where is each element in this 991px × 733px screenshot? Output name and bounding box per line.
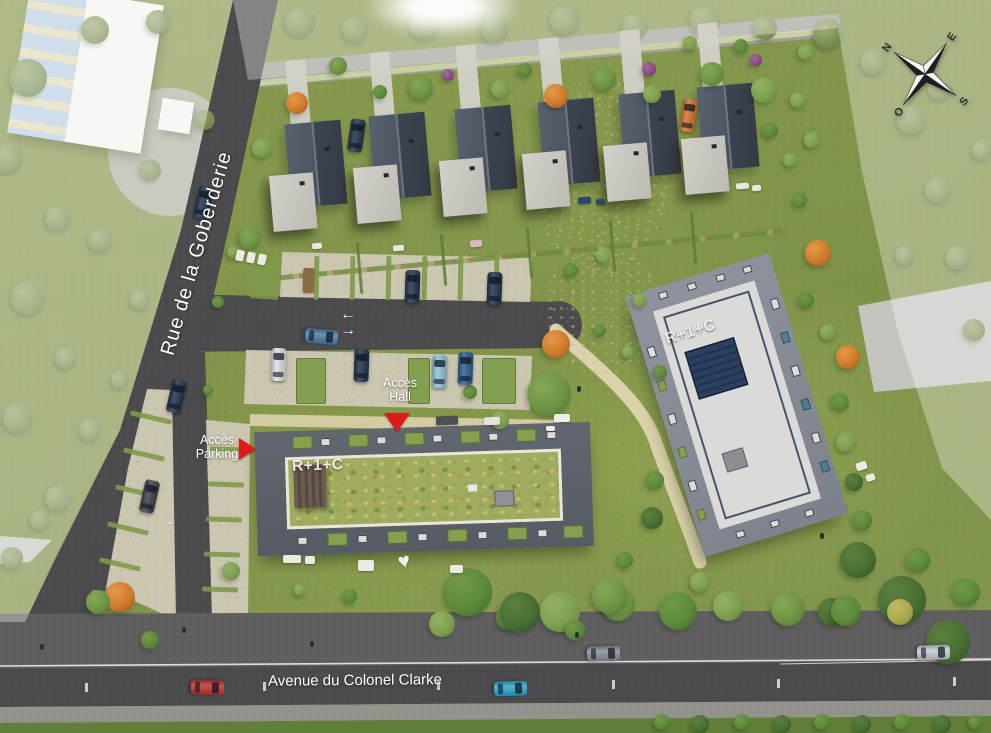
garden-furniture xyxy=(305,556,315,564)
tree-dk xyxy=(853,715,871,733)
house-annex-roof xyxy=(353,164,402,224)
tree-g3 xyxy=(444,568,492,616)
tree-g3 xyxy=(203,385,213,395)
parking-divider xyxy=(422,256,428,300)
car xyxy=(270,348,286,382)
garden-furniture xyxy=(303,268,315,293)
tree-g3 xyxy=(852,510,872,530)
balcony-cell xyxy=(780,331,791,344)
compass-east-label: E xyxy=(945,30,959,43)
pedestrian xyxy=(820,533,824,539)
tree-g3 xyxy=(952,578,980,606)
tree-g2 xyxy=(751,77,777,103)
garden-furniture xyxy=(484,417,500,426)
skylight xyxy=(658,291,669,300)
tree-g2 xyxy=(643,85,661,103)
skylight xyxy=(537,529,547,537)
car-rear-window xyxy=(681,122,693,128)
tree-g3 xyxy=(762,122,778,138)
balcony-cell xyxy=(677,446,688,459)
roof-vent xyxy=(578,125,583,129)
tree-pu xyxy=(442,69,454,81)
car-rear-window xyxy=(498,683,503,694)
tree-g1 xyxy=(86,590,110,614)
car-windshield xyxy=(515,683,522,694)
tree-muted xyxy=(45,485,71,511)
tree-pu xyxy=(642,62,656,76)
tree-g3 xyxy=(798,292,814,308)
car xyxy=(457,352,473,386)
car xyxy=(404,270,420,304)
house-annex-roof xyxy=(681,135,730,195)
balcony-cell xyxy=(507,527,527,541)
industrial-annex xyxy=(158,98,195,135)
balcony-cell xyxy=(460,430,480,444)
roof-vent xyxy=(659,117,664,121)
tree-g3 xyxy=(814,714,830,730)
car xyxy=(431,355,447,389)
building-a-label: R+1+C xyxy=(292,456,344,476)
car-rear-window xyxy=(921,647,926,658)
skylight xyxy=(715,273,726,282)
skylight xyxy=(432,434,442,442)
tree-g2 xyxy=(798,44,814,60)
access-parking-arrow-icon xyxy=(239,438,256,460)
skylight xyxy=(297,537,307,545)
garden-furniture xyxy=(470,239,483,247)
roof-vent xyxy=(711,144,716,148)
tree-muted xyxy=(195,110,215,130)
car xyxy=(353,349,369,383)
tree-g3 xyxy=(906,548,930,572)
car xyxy=(587,645,621,661)
house-unit xyxy=(537,98,600,187)
car-rear-window xyxy=(349,142,361,148)
compass-rose: N E S O xyxy=(875,22,975,122)
balcony-cell xyxy=(404,432,424,446)
access-hall-arrow-icon xyxy=(384,413,410,432)
car-rear-window xyxy=(195,682,200,693)
tree-g2 xyxy=(804,132,820,148)
car-rear-window xyxy=(407,294,418,299)
tree-g3 xyxy=(968,715,982,729)
garden-furniture xyxy=(596,199,605,206)
tree-muted xyxy=(81,16,109,44)
car-windshield xyxy=(460,357,471,364)
skylight xyxy=(804,508,815,517)
tree-g2 xyxy=(713,591,743,621)
car-windshield xyxy=(434,360,445,367)
tree-muted xyxy=(550,5,580,35)
balcony-cell xyxy=(292,435,312,449)
tree-yl xyxy=(887,599,913,625)
tree-muted xyxy=(972,140,991,160)
pedestrian xyxy=(182,627,186,633)
tree-g2 xyxy=(820,324,836,340)
car-rear-window xyxy=(434,379,445,384)
tree-g3 xyxy=(646,471,664,489)
skylight xyxy=(488,433,498,441)
car-windshield xyxy=(273,353,284,360)
skylight xyxy=(546,431,556,439)
tree-muted xyxy=(9,59,47,97)
balcony-cell xyxy=(447,529,467,543)
tree-g2 xyxy=(596,247,612,263)
tree-g3 xyxy=(659,592,697,630)
compass-north-label: N xyxy=(880,41,894,54)
tree-g1 xyxy=(771,592,805,626)
car-windshield xyxy=(356,354,367,361)
balcony-cell xyxy=(819,460,830,473)
street-bottom-label: Avenue du Colonel Clarke xyxy=(240,671,470,690)
tree-muted xyxy=(11,281,45,315)
skylight xyxy=(667,413,678,426)
car xyxy=(486,272,502,306)
house-annex-roof xyxy=(269,172,318,232)
house-annex-roof xyxy=(603,142,652,202)
garden-furniture xyxy=(393,245,404,252)
balcony-cell xyxy=(563,525,583,539)
road-arrow-up-icon: ↑ xyxy=(166,518,174,536)
site-plan-rendering: R+1+C R+1+C Accès Hall Accès Parking ← →… xyxy=(0,0,991,733)
tree-muted xyxy=(45,205,71,231)
garden-furniture xyxy=(752,185,761,192)
access-hall-label: Accès Hall xyxy=(370,376,430,405)
skylight xyxy=(687,480,698,493)
tree-g3 xyxy=(831,596,861,626)
car-rear-window xyxy=(273,372,284,377)
tree-muted xyxy=(342,17,368,43)
tree-muted xyxy=(946,246,970,270)
garden-furniture xyxy=(578,196,592,204)
tree-g2 xyxy=(252,138,272,158)
house-annex-roof xyxy=(439,157,488,217)
garden-furniture xyxy=(554,414,570,422)
house-unit xyxy=(618,90,681,179)
tree-g3 xyxy=(594,324,606,336)
roof-vent xyxy=(383,173,388,177)
tree-g1 xyxy=(239,227,261,249)
garden-furniture xyxy=(312,243,322,250)
skylight xyxy=(811,431,822,444)
garden-furniture xyxy=(283,555,301,563)
compass-west-label: O xyxy=(892,105,907,119)
tree-or xyxy=(105,582,135,612)
car-windshield xyxy=(352,123,364,131)
car xyxy=(917,644,951,660)
balcony-cell xyxy=(327,532,347,546)
tree-muted xyxy=(753,16,777,40)
skylight xyxy=(357,535,367,543)
car-windshield xyxy=(407,275,418,282)
car xyxy=(494,680,528,696)
roof-vent xyxy=(737,110,742,114)
tree-pu xyxy=(750,54,762,66)
tree-g3 xyxy=(141,631,159,649)
tree-muted xyxy=(139,159,161,181)
tree-g2 xyxy=(491,80,509,98)
skylight xyxy=(770,298,781,311)
tree-g1 xyxy=(592,67,616,91)
tree-g1 xyxy=(329,57,347,75)
tree-g3 xyxy=(373,85,387,99)
tree-g2 xyxy=(783,153,797,167)
tree-g1 xyxy=(700,62,724,86)
tree-g3 xyxy=(212,296,224,308)
house-unit xyxy=(696,83,759,172)
balcony-cell xyxy=(657,379,668,392)
car-rear-window xyxy=(356,373,367,378)
skylight xyxy=(320,438,330,446)
skylight xyxy=(770,519,781,528)
tree-muted xyxy=(285,7,315,37)
parking-divider xyxy=(314,256,320,300)
car-windshield xyxy=(212,682,219,693)
tree-muted xyxy=(1,547,23,569)
tree-g3 xyxy=(617,552,633,568)
tree-g3 xyxy=(653,365,667,379)
pedestrian xyxy=(40,644,44,650)
car-rear-window xyxy=(591,648,596,659)
tree-dk xyxy=(840,542,876,578)
house-unit xyxy=(368,112,431,201)
tree-g2 xyxy=(690,572,710,592)
tree-or xyxy=(544,84,568,108)
tree-g3 xyxy=(793,193,807,207)
tree-dk xyxy=(773,715,791,733)
tree-g2 xyxy=(633,293,647,307)
tree-muted xyxy=(55,347,77,369)
car-windshield xyxy=(172,384,184,393)
car xyxy=(304,328,338,346)
pedestrian xyxy=(577,386,581,392)
tree-muted xyxy=(895,245,915,265)
skylight xyxy=(687,282,698,291)
skylight xyxy=(742,265,753,274)
garden-furniture xyxy=(546,426,555,431)
tree-muted xyxy=(130,290,150,310)
tree-muted xyxy=(146,10,170,34)
skylight xyxy=(477,531,487,539)
tree-g3 xyxy=(894,714,910,730)
tree-g1 xyxy=(592,578,628,614)
balcony-cell xyxy=(516,428,536,442)
balcony-cell xyxy=(387,531,407,545)
tree-or xyxy=(805,240,831,266)
tree-muted xyxy=(813,19,843,49)
tree-g3 xyxy=(463,385,477,399)
garden-furniture xyxy=(358,560,374,571)
skylight xyxy=(376,436,386,444)
tree-g3 xyxy=(831,393,849,411)
tree-dk xyxy=(933,715,951,733)
pedestrian xyxy=(575,632,579,638)
tree-g3 xyxy=(343,589,357,603)
skylight xyxy=(735,529,746,538)
car-windshield xyxy=(326,331,334,343)
skylight xyxy=(790,364,801,377)
roof-vent xyxy=(495,132,500,136)
tree-g2 xyxy=(836,432,856,452)
balcony-cell xyxy=(696,508,707,521)
tree-dk xyxy=(691,715,709,733)
parking-divider xyxy=(386,256,392,300)
house-annex-roof xyxy=(522,150,571,210)
parking-divider xyxy=(458,256,464,300)
building-a-roof-unit xyxy=(494,490,514,507)
house-unit xyxy=(284,120,347,209)
tree-g2 xyxy=(622,346,634,358)
garden-furniture xyxy=(450,565,463,573)
tree-dk xyxy=(500,592,540,632)
road-arrow-right-icon: → xyxy=(340,322,356,340)
roof-vent xyxy=(409,139,414,143)
tree-g2 xyxy=(222,562,240,580)
tree-muted xyxy=(79,419,101,441)
car-rear-window xyxy=(309,330,315,341)
tree-g3 xyxy=(734,714,750,730)
tree-g3 xyxy=(518,63,532,77)
tree-g2 xyxy=(790,92,806,108)
roof-vent xyxy=(552,159,557,163)
car-windshield xyxy=(489,277,500,284)
tree-g1 xyxy=(527,372,571,416)
tree-or xyxy=(542,330,570,358)
car-windshield xyxy=(608,648,615,659)
roof-vent xyxy=(299,181,304,185)
tree-g3 xyxy=(564,263,578,277)
tree-muted xyxy=(3,403,33,433)
pedestrian xyxy=(310,641,314,647)
tree-g2 xyxy=(429,611,455,637)
compass-south-label: S xyxy=(957,95,971,108)
tree-muted xyxy=(30,510,50,530)
tree-muted xyxy=(88,228,112,252)
tree-muted xyxy=(111,371,129,389)
tree-g2 xyxy=(683,36,697,50)
tree-muted xyxy=(925,177,951,203)
tree-or xyxy=(286,92,308,114)
balcony-cell xyxy=(348,434,368,448)
building-a xyxy=(254,422,594,556)
tree-muted xyxy=(963,319,985,341)
garden-furniture xyxy=(436,416,458,426)
tree-g1 xyxy=(409,76,433,100)
building-a-skylight xyxy=(468,484,477,491)
roof-vent xyxy=(633,151,638,155)
parking-hedge-cell xyxy=(296,358,326,404)
roof-vent xyxy=(325,147,330,151)
roof-vent xyxy=(469,166,474,170)
car-windshield xyxy=(938,647,945,658)
car-rear-window xyxy=(489,296,500,301)
tree-g2 xyxy=(294,584,306,596)
tree-g3 xyxy=(734,39,748,53)
car-rear-window xyxy=(168,403,180,410)
skylight xyxy=(646,346,657,359)
car-rear-window xyxy=(460,376,471,381)
tree-g3 xyxy=(654,714,670,730)
car-windshield xyxy=(684,103,696,111)
skylight xyxy=(417,533,427,541)
garden-furniture xyxy=(736,182,749,189)
balcony-cell xyxy=(800,398,811,411)
parking-divider xyxy=(350,256,356,300)
car-rear-window xyxy=(141,503,153,510)
car-windshield xyxy=(145,484,157,493)
tree-dk xyxy=(845,473,863,491)
parking-hedge-cell xyxy=(482,358,516,404)
tree-or xyxy=(836,345,860,369)
tree-dk xyxy=(641,507,663,529)
house-unit xyxy=(454,105,517,194)
car xyxy=(191,679,225,695)
